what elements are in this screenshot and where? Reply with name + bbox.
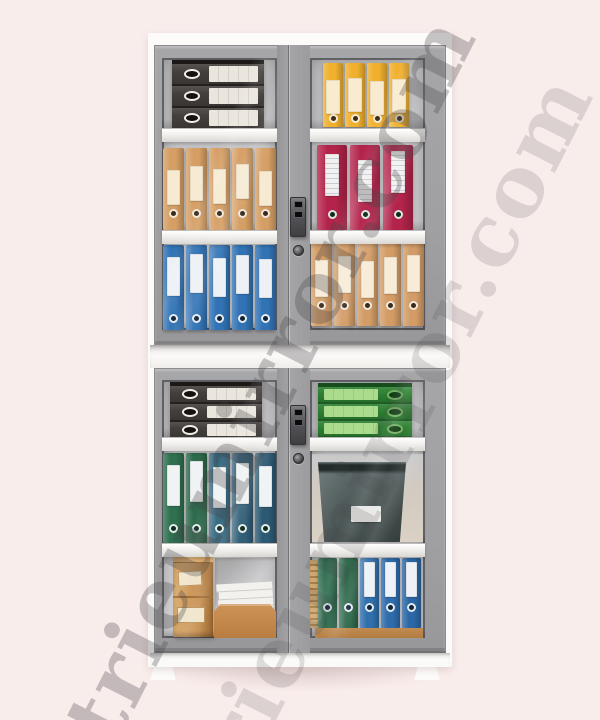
binder	[345, 63, 365, 127]
binder-spine-label	[259, 466, 271, 507]
binder	[186, 245, 207, 330]
office-cabinet-product-photo: trieumirror.com trieumirror.com	[0, 0, 600, 720]
binder-horizontal	[170, 404, 262, 422]
cardboard-drawer-unit	[173, 557, 213, 637]
binder	[255, 148, 276, 230]
binder-spine-label	[209, 66, 259, 82]
binder-spine-label	[325, 154, 339, 197]
binder-grommet-hole	[169, 314, 178, 323]
binder-grommet-hole	[317, 301, 326, 310]
binder	[255, 245, 276, 330]
binder	[357, 242, 378, 326]
paper-tray-front	[214, 604, 276, 638]
lock-slot-icon	[294, 419, 303, 426]
binder-grommet-hole	[365, 603, 374, 612]
binder-spine-label	[326, 80, 339, 113]
shelf-board	[162, 230, 277, 244]
binder-ring-eyelet	[184, 91, 200, 101]
binder-spine-label	[384, 257, 397, 294]
binder-spine-label	[407, 255, 420, 292]
binder-spine-label	[358, 160, 372, 203]
binder-grommet-hole	[351, 114, 360, 123]
glass-window-lower-left	[162, 380, 277, 638]
binder-spine-label	[315, 260, 328, 297]
lock-slot-icon	[294, 211, 303, 218]
binder	[209, 148, 230, 230]
binder-spine-label	[207, 424, 257, 436]
binder	[255, 453, 276, 543]
binder	[367, 63, 387, 127]
binder-grommet-hole	[192, 524, 201, 533]
binder-grommet-hole	[328, 210, 337, 219]
binder-spine-label	[207, 406, 257, 418]
binder	[163, 453, 184, 543]
binder-horizontal	[318, 421, 412, 438]
binder-grommet-hole	[215, 524, 224, 533]
stacked-binder-pile	[318, 383, 412, 443]
drawer-divider	[173, 596, 213, 598]
binder-grommet-hole	[323, 603, 332, 612]
binder-grommet-hole	[215, 209, 224, 218]
binder-grommet-hole	[409, 301, 418, 310]
lower-door-split-line	[288, 368, 289, 653]
glass-window-upper-left	[162, 58, 277, 330]
binder-grommet-hole	[261, 524, 270, 533]
binder-spine-label	[236, 463, 248, 504]
binder-spine-label	[259, 171, 272, 205]
binder-spine-label	[385, 562, 395, 597]
lower-keyhole-icon	[293, 453, 304, 464]
binder-grommet-hole	[363, 301, 372, 310]
binder-spine-label	[213, 467, 225, 508]
stacked-binder-pile	[172, 60, 264, 130]
binder-spine-label	[167, 465, 179, 506]
binder-grommet-hole	[238, 524, 247, 533]
binder-spine-label	[167, 170, 180, 204]
shelf-board	[162, 543, 277, 557]
shelf-board	[162, 437, 277, 451]
binder	[402, 558, 421, 628]
storage-bin-rim	[318, 462, 406, 474]
glass-window-lower-right	[310, 380, 425, 638]
binder	[403, 242, 424, 326]
binder-grommet-hole	[261, 314, 270, 323]
binder-ring-eyelet	[182, 389, 198, 399]
binder	[186, 148, 207, 230]
binder-spine-label	[190, 461, 202, 502]
lock-slot-icon	[294, 201, 303, 208]
binder-horizontal	[318, 387, 412, 404]
storage-bin	[318, 462, 406, 542]
stacked-binder-pile	[170, 382, 262, 440]
binder-ring-eyelet	[182, 407, 198, 417]
shelf-board	[310, 543, 425, 557]
binder-horizontal	[318, 404, 412, 421]
binder-spine-label	[190, 254, 202, 293]
binder-spine-label	[348, 78, 361, 111]
binder	[232, 245, 253, 330]
binder-grommet-hole	[169, 209, 178, 218]
binder-grommet-hole	[395, 114, 404, 123]
binder-spine-label	[213, 169, 226, 203]
binder-grommet-hole	[386, 603, 395, 612]
binder-spine-label	[209, 88, 259, 104]
lock-slot-icon	[294, 409, 303, 416]
binder	[232, 453, 253, 543]
binder-spine-label	[324, 389, 379, 400]
binder	[383, 145, 413, 230]
binder-horizontal	[172, 86, 264, 108]
binder	[334, 242, 355, 326]
binder-grommet-hole	[361, 210, 370, 219]
binder-grommet-hole	[169, 524, 178, 533]
binder-spine-label	[259, 259, 271, 298]
binder-spine-label	[209, 110, 259, 126]
binder	[209, 245, 230, 330]
binder-spine-label	[391, 151, 405, 194]
binder-spine-label	[370, 81, 383, 114]
shelf-board	[310, 128, 425, 142]
binder-spine-label	[338, 256, 351, 293]
binder-spine-label	[361, 261, 374, 298]
binder-grommet-hole	[394, 210, 403, 219]
binder-ring-eyelet	[182, 425, 198, 435]
binder-ring-eyelet	[387, 424, 403, 434]
binder	[163, 148, 184, 230]
drawer-label-plate	[177, 607, 205, 623]
drawer-label-plate	[178, 570, 203, 586]
binder-grommet-hole	[373, 114, 382, 123]
shelf-board	[310, 230, 425, 244]
binder-horizontal	[172, 108, 264, 130]
binder	[380, 242, 401, 326]
binder-spine-label	[324, 406, 379, 417]
binder-spine-label	[190, 166, 203, 200]
binder	[339, 558, 358, 628]
binder-grommet-hole	[215, 314, 224, 323]
upper-center-stile	[277, 45, 310, 345]
binder-grommet-hole	[344, 603, 353, 612]
binder-grommet-hole	[192, 314, 201, 323]
binder-ring-eyelet	[184, 113, 200, 123]
binder	[350, 145, 380, 230]
folded-files-stack	[310, 560, 318, 628]
shelf-board	[162, 128, 277, 142]
binder-horizontal	[170, 386, 262, 404]
binder-spine-label	[167, 257, 179, 296]
binder-grommet-hole	[407, 603, 416, 612]
binder	[381, 558, 400, 628]
binder-spine-label	[324, 423, 379, 434]
binder	[186, 453, 207, 543]
binder-spine-label	[364, 562, 374, 597]
binder	[323, 63, 343, 127]
binder	[163, 245, 184, 330]
binder	[389, 63, 409, 127]
binder-ring-eyelet	[387, 390, 403, 400]
binder	[360, 558, 379, 628]
binder-grommet-hole	[261, 209, 270, 218]
binder-spine-label	[207, 388, 257, 400]
upper-door-split-line	[288, 45, 289, 345]
binder-ring-eyelet	[387, 407, 403, 417]
wooden-base-strip	[315, 628, 423, 638]
drawer-unit-top-edge	[173, 557, 213, 563]
binder-grommet-hole	[386, 301, 395, 310]
binder-grommet-hole	[238, 314, 247, 323]
binder	[209, 453, 230, 543]
binder-grommet-hole	[329, 114, 338, 123]
binder	[232, 148, 253, 230]
binder	[311, 242, 332, 326]
lower-lock-handle	[290, 405, 306, 445]
shelf-board	[310, 437, 425, 451]
binder-grommet-hole	[340, 301, 349, 310]
binder-grommet-hole	[192, 209, 201, 218]
upper-keyhole-icon	[293, 245, 304, 256]
binder	[318, 558, 337, 628]
binder-spine-label	[213, 258, 225, 297]
upper-lock-handle	[290, 197, 306, 237]
binder-spine-label	[236, 164, 249, 198]
binder	[317, 145, 347, 230]
glass-window-upper-right	[310, 58, 425, 330]
binder-spine-label	[392, 79, 405, 112]
storage-bin-label	[351, 506, 381, 522]
binder-horizontal	[172, 64, 264, 86]
binder-ring-eyelet	[184, 69, 200, 79]
binder-spine-label	[406, 562, 416, 597]
binder-grommet-hole	[238, 209, 247, 218]
binder-spine-label	[236, 255, 248, 294]
